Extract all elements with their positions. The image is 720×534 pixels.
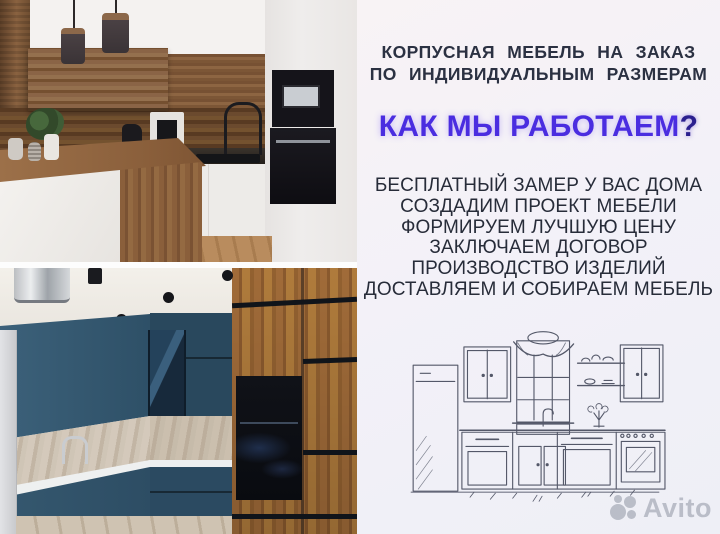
- black-faucet: [224, 102, 262, 155]
- floating-wood-cabinet: [28, 48, 168, 111]
- chrome-chandelier: [14, 268, 70, 303]
- avito-watermark: Avito: [610, 493, 712, 524]
- built-in-black-oven: [236, 376, 302, 500]
- kitchen-sketch-drawing: [403, 328, 667, 504]
- photo-bottom-teal-kitchen: [0, 268, 357, 534]
- fridge: [0, 330, 17, 534]
- chrome-faucet: [62, 436, 88, 464]
- peninsula-white-front: [0, 168, 120, 262]
- black-sink: [196, 154, 260, 163]
- cabinet-gap: [303, 450, 357, 455]
- step-item: ПРОИЗВОДСТВО ИЗДЕЛИЙ: [359, 259, 718, 280]
- vase: [8, 138, 23, 160]
- avito-watermark-text: Avito: [643, 493, 712, 524]
- step-item: ДОСТАВЛЯЕМ И СОБИРАЕМ МЕБЕЛЬ: [359, 280, 718, 301]
- pendant-lamp: [61, 28, 85, 64]
- pendant-cord: [73, 0, 75, 30]
- subtitle: КАК МЫ РАБОТАЕМ?: [357, 110, 720, 144]
- step-item: ЗАКЛЮЧАЕМ ДОГОВОР: [359, 238, 718, 259]
- steps-list: БЕСПЛАТНЫЙ ЗАМЕР У ВАС ДОМА СОЗДАДИМ ПРО…: [359, 176, 718, 301]
- headline: КОРПУСНАЯ МЕБЕЛЬ НА ЗАКАЗ ПО ИНДИВИДУАЛЬ…: [361, 42, 716, 85]
- marble-backsplash-facing: [150, 416, 232, 460]
- subtitle-text: КАК МЫ РАБОТАЕМ: [379, 110, 680, 143]
- black-ceiling-lamp: [88, 268, 102, 284]
- built-in-oven: [270, 128, 336, 204]
- step-item: СОЗДАДИМ ПРОЕКТ МЕБЕЛИ: [359, 197, 718, 218]
- headline-line2: ПО ИНДИВИДУАЛЬНЫМ РАЗМЕРАМ: [361, 64, 716, 86]
- info-panel: КОРПУСНАЯ МЕБЕЛЬ НА ЗАКАЗ ПО ИНДИВИДУАЛЬ…: [357, 0, 720, 534]
- avito-dots-logo-icon: [610, 495, 640, 522]
- wood-backsplash-upper: [168, 54, 265, 108]
- subtitle-question-mark: ?: [680, 110, 699, 143]
- step-item: БЕСПЛАТНЫЙ ЗАМЕР У ВАС ДОМА: [359, 176, 718, 197]
- cabinet-gap: [232, 514, 357, 519]
- tile-floor: [16, 516, 232, 534]
- headline-line1: КОРПУСНАЯ МЕБЕЛЬ НА ЗАКАЗ: [361, 42, 716, 64]
- photo-top-white-kitchen: [0, 0, 357, 262]
- oven-handle: [240, 422, 298, 424]
- ceiling-spotlight: [163, 292, 174, 303]
- vase: [44, 134, 59, 160]
- built-in-microwave: [272, 70, 334, 127]
- pendant-lamp: [102, 13, 129, 53]
- listing-image: КОРПУСНАЯ МЕБЕЛЬ НА ЗАКАЗ ПО ИНДИВИДУАЛЬ…: [0, 0, 720, 534]
- vase: [28, 142, 41, 161]
- microwave-display: [282, 85, 320, 108]
- ceiling-spotlight: [222, 270, 233, 281]
- white-countertop-facing: [150, 460, 232, 467]
- step-item: ФОРМИРУЕМ ЛУЧШУЮ ЦЕНУ: [359, 218, 718, 239]
- oven-handle: [276, 140, 330, 143]
- glass-display-cabinet: [148, 330, 186, 416]
- peninsula-wood-end-panel: [120, 162, 202, 262]
